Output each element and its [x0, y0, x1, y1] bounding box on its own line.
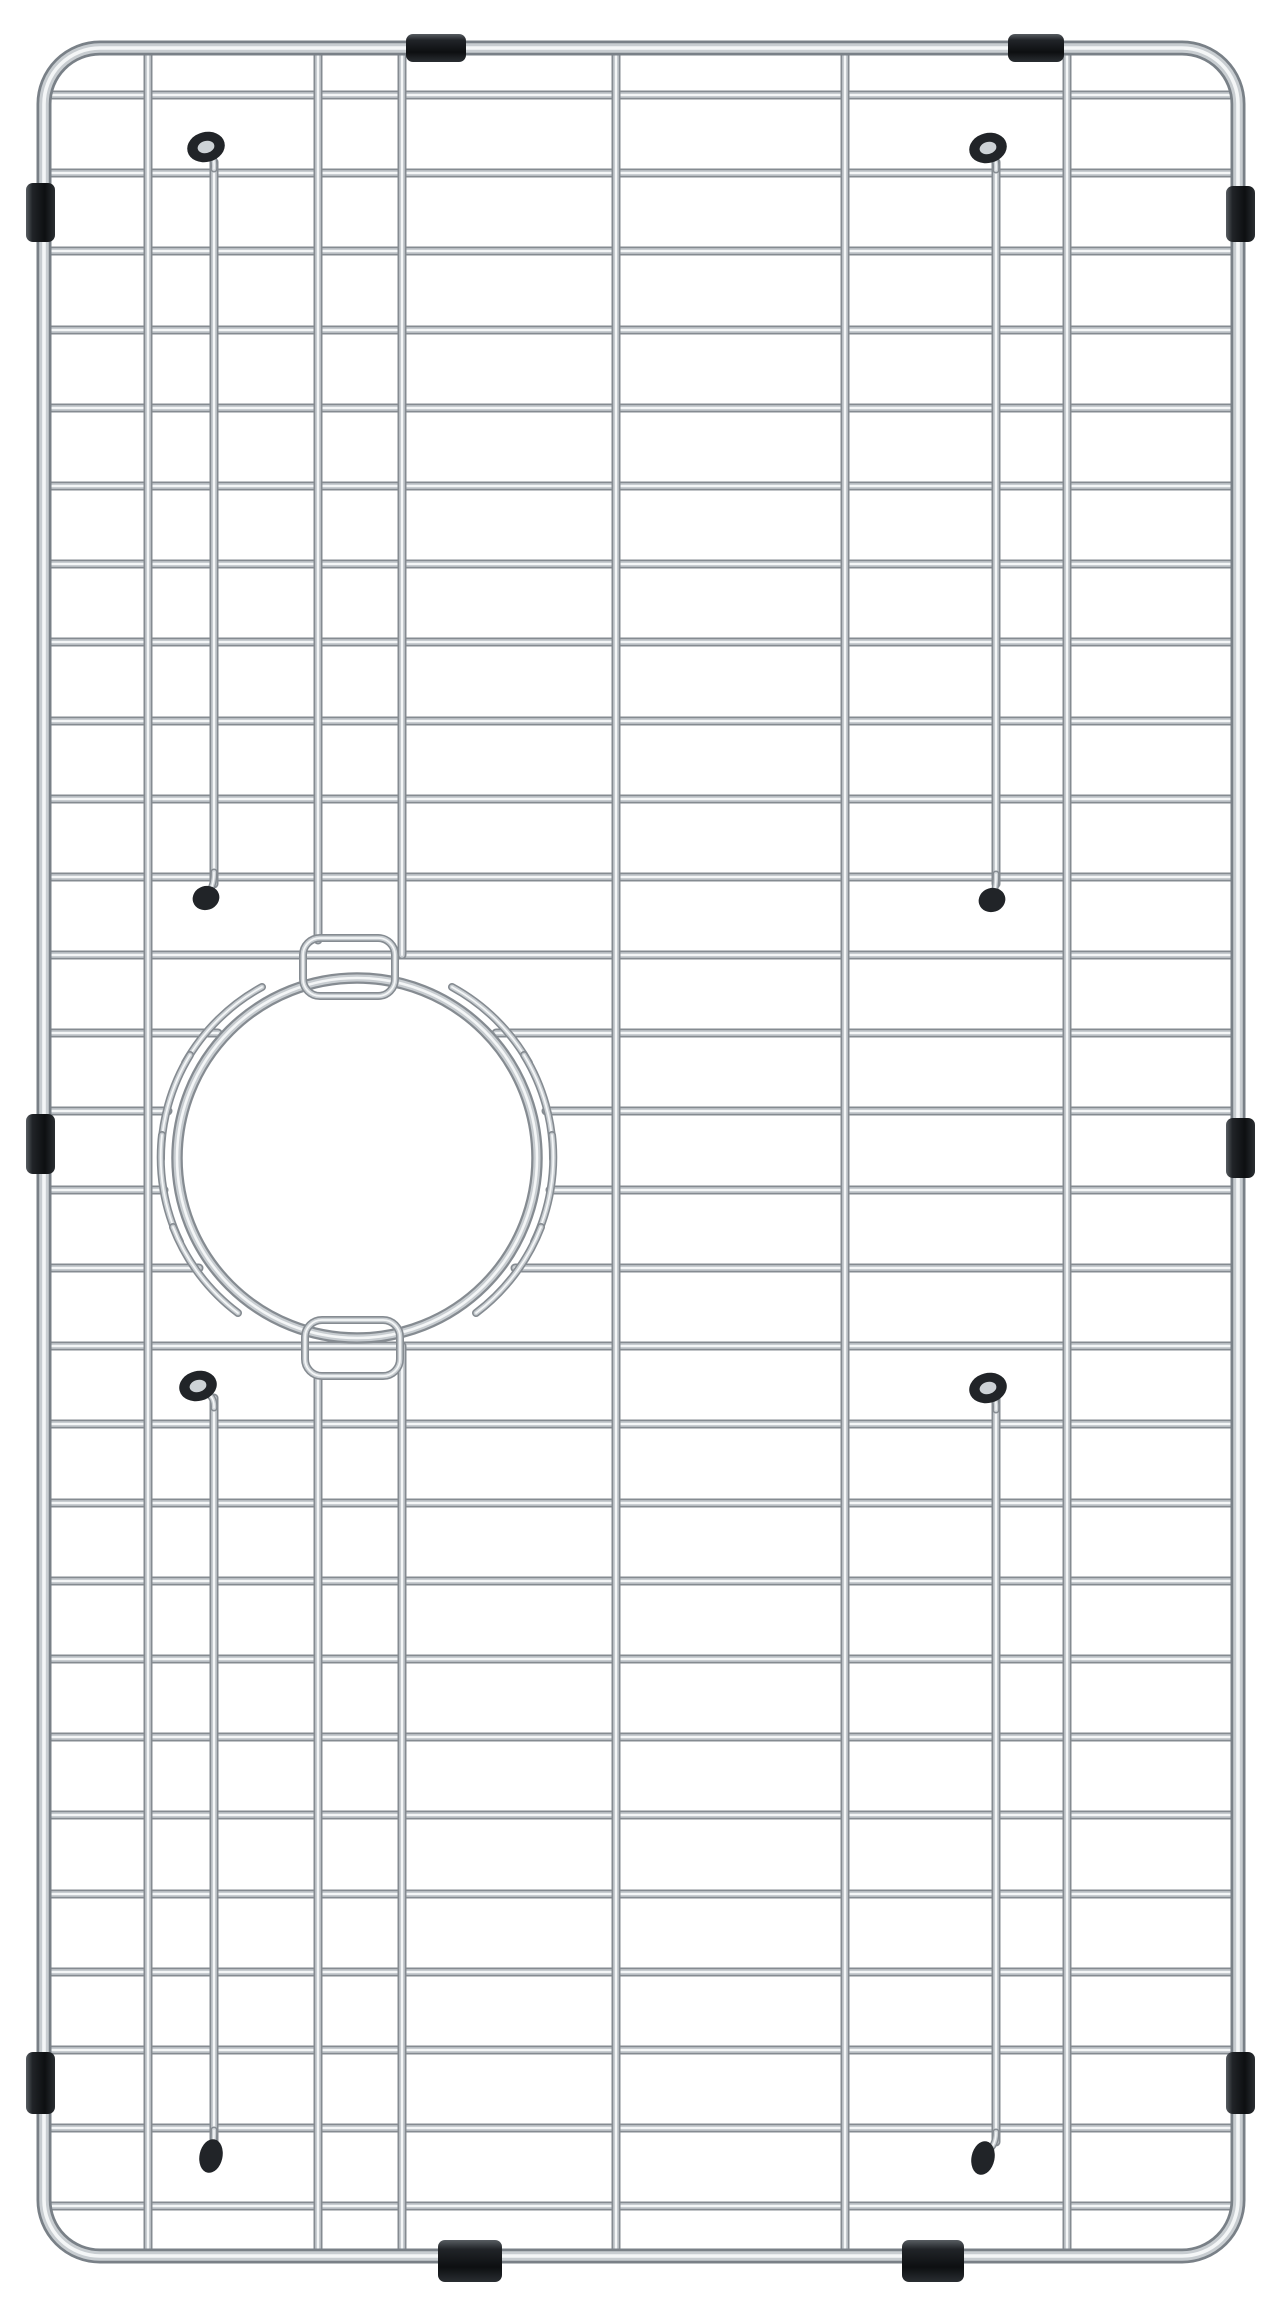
- rubber-foot-cap: [966, 129, 1010, 170]
- frame-bumper-top: [1008, 34, 1064, 62]
- rubber-feet: [176, 128, 1010, 2177]
- frame-bumper-left: [26, 1114, 55, 1174]
- foot-cap-drop: [196, 2137, 226, 2175]
- rubber-foot-cap: [184, 128, 228, 169]
- horizontal-wires: [46, 95, 1236, 2206]
- foot-cap-ball: [975, 884, 1008, 915]
- wire-hook-loop: [185, 987, 262, 1063]
- rubber-foot-cap: [966, 1369, 1010, 1410]
- foot-cap-ball: [189, 882, 222, 913]
- frame-bumper-left: [26, 2052, 55, 2114]
- rubber-foot-cap: [196, 2130, 226, 2175]
- vertical-wires: [148, 48, 1067, 2256]
- rubber-foot-cap: [176, 1367, 220, 1408]
- sink-grid-drawing: [0, 0, 1280, 2313]
- frame-bumper-bottom: [902, 2240, 964, 2282]
- wire-hook-loop: [452, 987, 529, 1063]
- rubber-foot-cap: [968, 2132, 998, 2177]
- sink-grid-product-photo: [0, 0, 1280, 2313]
- grid-frame: [44, 48, 1238, 2256]
- frame-bumper-left: [26, 183, 55, 242]
- drain-ring-highlight: [177, 978, 537, 1338]
- frame-tube: [44, 48, 1238, 2256]
- frame-bumper-bottom: [438, 2240, 502, 2282]
- frame-bumper-top: [406, 34, 466, 62]
- frame-bumper-right: [1226, 1118, 1255, 1178]
- frame-bumper-right: [1226, 186, 1255, 242]
- frame-bumper-right: [1226, 2052, 1255, 2114]
